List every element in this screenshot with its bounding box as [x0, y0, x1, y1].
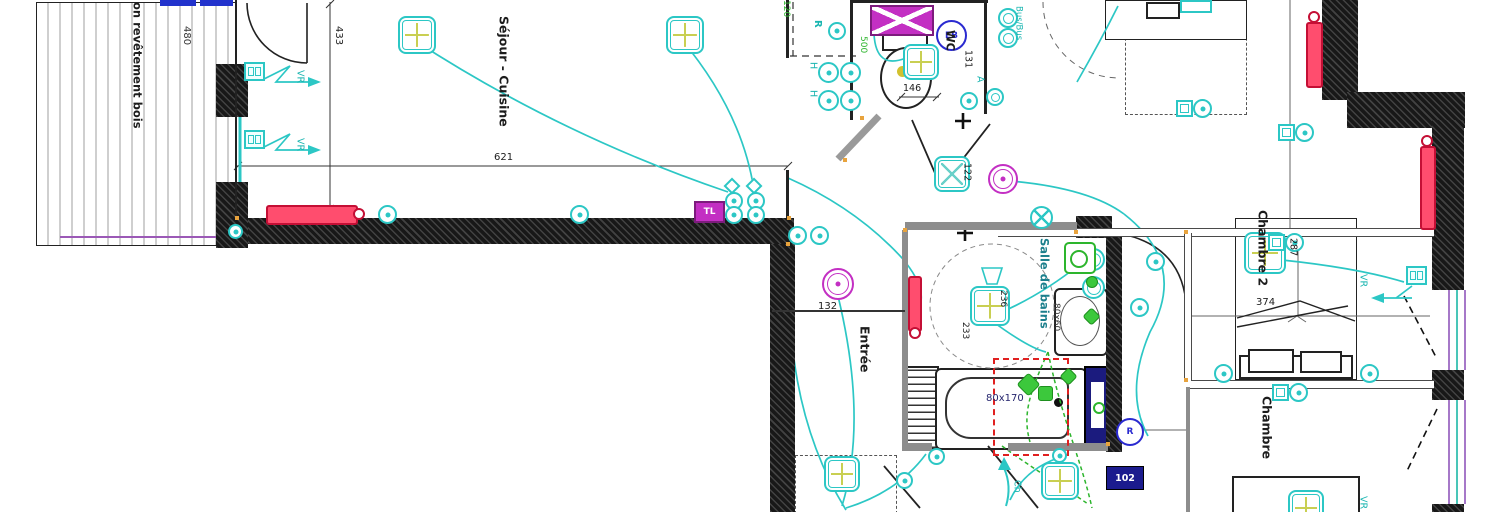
dim-621: 621: [494, 153, 513, 163]
dim-131: 131: [963, 50, 973, 68]
room-number-label: 102: [1115, 473, 1135, 484]
corner-dot: [860, 116, 864, 120]
socket: [1146, 252, 1165, 271]
dim-287: 287: [1288, 238, 1298, 256]
socket: [896, 472, 913, 489]
socket-hob: [840, 90, 861, 111]
wall-right-upper: [1432, 120, 1464, 290]
radiator-right: [1420, 146, 1436, 230]
corner-dot: [1184, 230, 1188, 234]
label-a-point: A: [975, 76, 985, 83]
dim-146: 146: [903, 84, 921, 94]
switch-square: [1268, 234, 1285, 251]
label-bus: Bus/Bus: [1014, 6, 1023, 40]
socket: [378, 205, 397, 224]
corner-dot: [1106, 442, 1110, 446]
wall-topright-vert: [1322, 0, 1358, 100]
dim-bathtub: 80x170: [986, 394, 1024, 404]
tl-fixture-badge: TL: [694, 201, 725, 223]
radiator-dressing: [1306, 22, 1323, 88]
dim-basin: 80x60: [1051, 303, 1060, 331]
room-label-sdb: Salle de bains: [1038, 238, 1050, 329]
corner-dot: [787, 216, 791, 220]
ceiling-light-wc: [903, 44, 939, 80]
room-label-chambre2: Chambre 2: [1256, 210, 1269, 286]
wall-right-between-windows: [1432, 370, 1464, 400]
label-vr: VR: [1358, 496, 1368, 509]
label-vr: VR: [1358, 274, 1368, 287]
socket: [928, 448, 945, 465]
r-badge: R: [1116, 418, 1144, 446]
room-number-badge: 102: [1106, 466, 1144, 490]
dim-236: 236: [998, 290, 1007, 307]
switch: [1193, 99, 1212, 118]
switch: [1295, 123, 1314, 142]
socket-hob: [818, 90, 839, 111]
radiator-cap: [353, 208, 365, 220]
corner-dot: [843, 158, 847, 162]
wall-right-bottom: [1432, 504, 1464, 512]
green-marker: [1038, 386, 1053, 401]
wall-lamp-stem: [1052, 448, 1067, 463]
green-marker: [1086, 276, 1098, 288]
ceiling-light-chambre: [1288, 490, 1324, 512]
socket: [1214, 364, 1233, 383]
wall-entree-left: [770, 244, 795, 512]
ceiling-light: [398, 16, 436, 54]
radiator-sejour: [266, 205, 358, 225]
window-chambre2: [1448, 290, 1466, 370]
socket-hood: [840, 62, 861, 83]
shutter-switch-vr: [244, 130, 265, 149]
tl-badge-label: TL: [704, 207, 716, 217]
dim-433: 433: [333, 26, 343, 45]
ceiling-light-hall: [1041, 462, 1079, 500]
dim-480: 480: [181, 26, 191, 45]
dim-233: 233: [960, 322, 969, 339]
wall-sdb-right: [1106, 230, 1122, 452]
switch: [725, 206, 743, 224]
wall-chambre-left: [1186, 387, 1190, 512]
socket: [228, 224, 243, 239]
dim-122: 122: [962, 163, 972, 181]
corner-dot: [235, 216, 239, 220]
corner-dot: [1074, 230, 1078, 234]
switch-square: [1278, 124, 1295, 141]
socket: [810, 226, 829, 245]
switch: [1289, 383, 1308, 402]
ceiling-light-closet: [824, 456, 860, 492]
corner-dot: [903, 228, 907, 232]
shutter-switch-vr: [244, 62, 265, 81]
label-ch-arrow: Ch: [1012, 480, 1022, 493]
room-label-sejour: Séjour - Cuisine: [497, 16, 510, 127]
wall-sejour-left-line: [235, 0, 237, 219]
wall-sdb-bottom-a: [902, 443, 932, 451]
socket-fridge: [828, 22, 846, 40]
smoke-detector: [822, 268, 854, 300]
label-hood-h: H: [808, 62, 818, 69]
radiator-cap: [909, 327, 921, 339]
socket-hood: [818, 62, 839, 83]
vmc-extract-vent: [870, 5, 934, 36]
label-vr: VR: [295, 138, 305, 151]
window-chambre: [1448, 400, 1466, 504]
ceiling-light: [666, 16, 704, 54]
wall-sdb-left: [902, 230, 908, 445]
wall-wc-top: [850, 0, 988, 3]
label-hob-h: H: [808, 90, 818, 97]
dim-120: 120: [781, 0, 790, 17]
corner-dot: [786, 242, 790, 246]
room-label-entree: Entrée: [858, 326, 871, 373]
room-label-wc: WC: [944, 30, 956, 51]
dim-500: 500: [858, 36, 867, 53]
socket: [788, 226, 807, 245]
switch: [747, 206, 765, 224]
shutter-switch-vr: [1406, 266, 1427, 285]
smoke-detector: [988, 164, 1018, 194]
label-vr: VR: [295, 70, 305, 83]
dim-374: 374: [1256, 298, 1275, 308]
label-fridge-r: R: [812, 20, 822, 28]
wall-kitchen-stub-bottom: [786, 170, 789, 220]
socket: [570, 205, 589, 224]
washer-outlet-inner: [1070, 250, 1088, 268]
switch-square: [1176, 100, 1193, 117]
room-label-balcony: on revêtement bois: [131, 2, 143, 129]
socket-wc: [960, 92, 978, 110]
junction-box: [1030, 206, 1053, 229]
radiator-cap: [1421, 135, 1433, 147]
wall-corridor-vert: [1184, 233, 1192, 381]
pmr-clearance-dashed: [993, 358, 1069, 456]
room-label-chambre: Chambre: [1260, 396, 1273, 459]
radiator-cap: [1308, 11, 1320, 23]
radiator-entree: [908, 276, 922, 332]
switch-square: [1272, 384, 1289, 401]
socket: [1360, 364, 1379, 383]
wall-entree-line: [772, 310, 905, 312]
corner-dot: [1184, 378, 1188, 382]
socket: [1130, 298, 1149, 317]
r-badge-label: R: [1127, 427, 1134, 437]
dim-132: 132: [818, 302, 837, 312]
floor-plan-canvas: EB R TL 102 on revêtement bois 480 433 S…: [0, 0, 1504, 512]
applique-point: [986, 88, 1004, 106]
